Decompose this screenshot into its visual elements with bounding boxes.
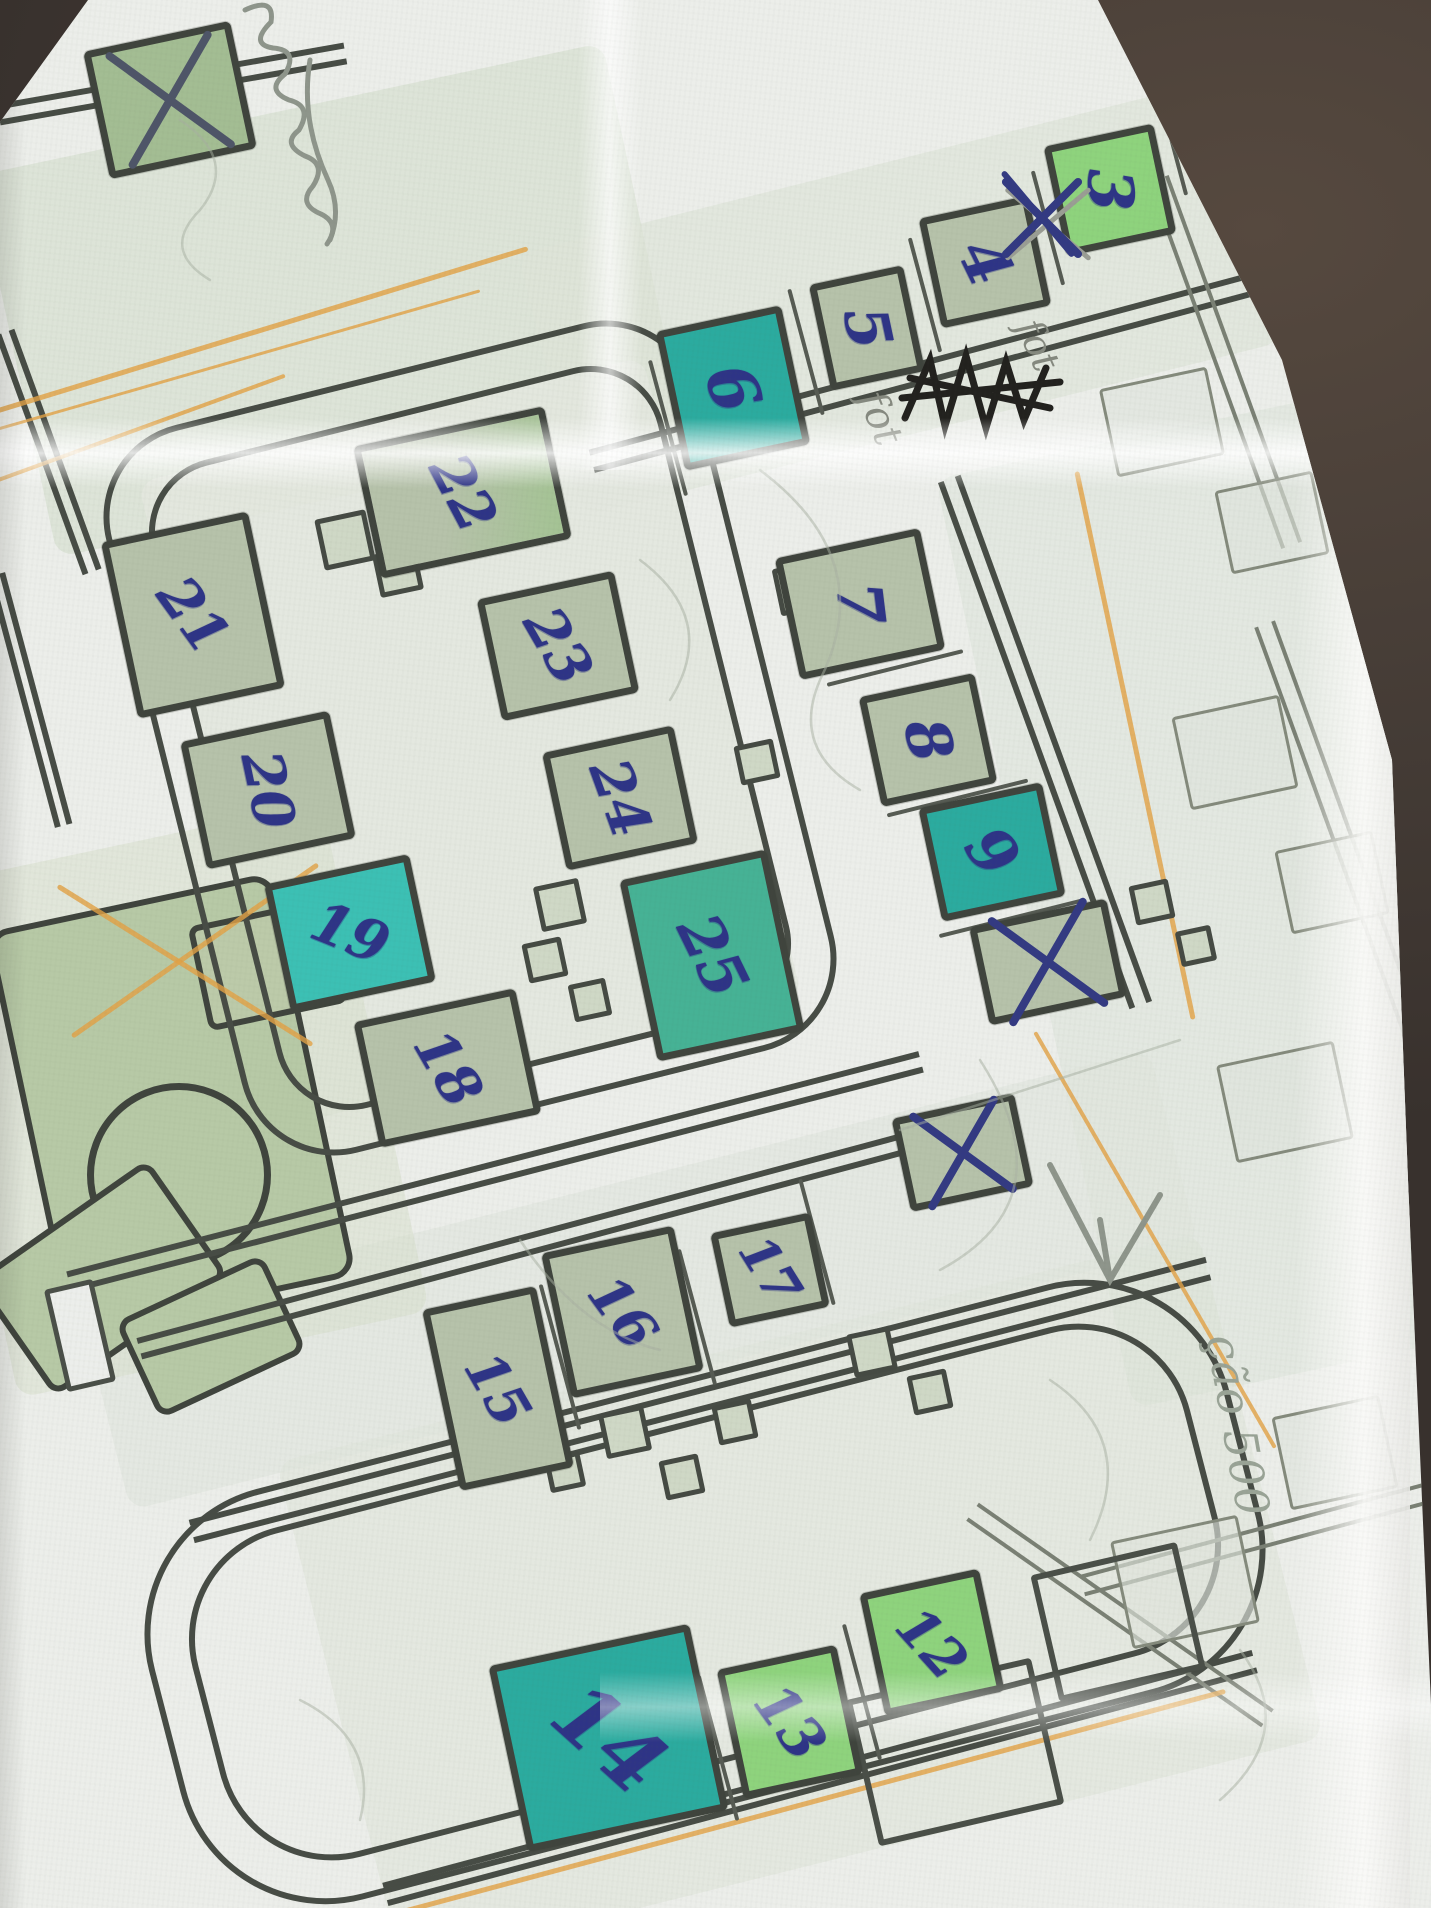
pencil-arrow-mark <box>1040 1160 1200 1340</box>
orange-route-line <box>1259 5 1341 296</box>
paper-sheet: 34567891213141516171819202122232425fotfo… <box>0 0 1431 1908</box>
pencil-cursive-handwriting <box>215 0 415 260</box>
photo-of-paper-map: 34567891213141516171819202122232425fotfo… <box>0 0 1431 1908</box>
pencil-contour-lines <box>0 0 1431 1908</box>
black-ink-scribble <box>900 348 1070 448</box>
